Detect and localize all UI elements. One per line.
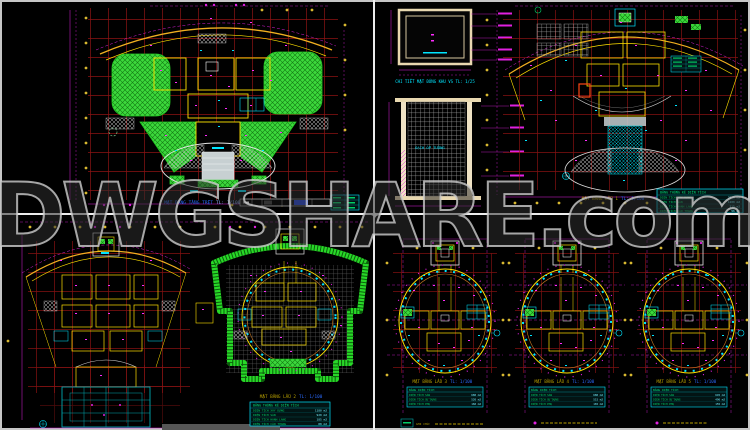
svg-text:BẢNG DIỆN TÍCH: BẢNG DIỆN TÍCH	[409, 387, 434, 392]
svg-text:TL: 1/100: TL: 1/100	[694, 379, 717, 384]
legend-table: BẢNG THỐNG KÊ DIỆN TÍCH DIỆN TÍCH XÂY DỰ…	[250, 402, 330, 426]
svg-text:GHI CHÚ:: GHI CHÚ:	[416, 421, 431, 426]
sheet-level1-plan: CHI TIẾT MẶT ĐỨNG KHU VS TL: 1/25 GẠCH Ố…	[375, 0, 750, 215]
svg-text:155 m2: 155 m2	[715, 402, 725, 406]
svg-text:DIỆN TÍCH XÂY DỰNG: DIỆN TÍCH XÂY DỰNG	[660, 195, 692, 200]
svg-text:MẶT BẰNG LẦU 3: MẶT BẰNG LẦU 3	[412, 379, 447, 384]
svg-text:490 m2: 490 m2	[715, 398, 725, 402]
svg-text:TL: 1/100: TL: 1/100	[450, 379, 473, 384]
cad-preview-image: MẶT BẰNG TẦNG TRỆT TL: 1/100	[0, 0, 750, 430]
svg-text:TL: 1/100: TL: 1/100	[299, 394, 323, 400]
sheet-ground-floor-plan: MẶT BẰNG TẦNG TRỆT TL: 1/100	[0, 0, 375, 215]
svg-text:DIỆN TÍCH SỬ DỤNG: DIỆN TÍCH SỬ DỤNG	[531, 397, 559, 402]
legend-table: BẢNG DIỆN TÍCH DIỆN TÍCH SÀN 645 m2 DIỆN…	[651, 387, 727, 407]
svg-text:DIỆN TÍCH SÀN: DIỆN TÍCH SÀN	[253, 412, 276, 417]
svg-text:BẢNG THỐNG KÊ DIỆN TÍCH: BẢNG THỐNG KÊ DIỆN TÍCH	[253, 403, 299, 408]
svg-text:2150 m2: 2150 m2	[728, 196, 740, 200]
svg-text:1180 m2: 1180 m2	[315, 409, 327, 413]
detail-top-title: CHI TIẾT MẶT ĐỨNG KHU VS TL: 1/25	[395, 79, 475, 84]
mini-table	[671, 56, 701, 72]
svg-text:DIỆN TÍCH SỬ DỤNG: DIỆN TÍCH SỬ DỤNG	[409, 397, 437, 402]
svg-text:TL: 1/100: TL: 1/100	[621, 196, 645, 202]
svg-text:DIỆN TÍCH SÀN: DIỆN TÍCH SÀN	[409, 392, 430, 397]
svg-text:TL: 1/100: TL: 1/100	[572, 379, 595, 384]
svg-text:DIỆN TÍCH CẦU THANG: DIỆN TÍCH CẦU THANG	[253, 421, 286, 426]
detail-bottom-label: GẠCH ỐP TƯỜNG	[415, 145, 445, 150]
tower-plan-level5: MẶT BẰNG LẦU 5 TL: 1/100 BẢNG DIỆN TÍCH …	[630, 239, 749, 425]
svg-text:DIỆN TÍCH PHỤ: DIỆN TÍCH PHỤ	[409, 401, 430, 406]
svg-text:DIỆN TÍCH SÀN: DIỆN TÍCH SÀN	[531, 392, 552, 397]
sheet-level2-plans: MẶT BẰNG LẦU 2 TL: 1/100 BẢNG THỐNG KÊ D…	[0, 215, 375, 430]
sheet-tower-plans: MẶT BẰNG LẦU 3 TL: 1/100 BẢNG DIỆN TÍCH …	[375, 215, 750, 430]
svg-text:520 m2: 520 m2	[471, 398, 481, 402]
svg-text:DIỆN TÍCH SỬ DỤNG: DIỆN TÍCH SỬ DỤNG	[653, 397, 681, 402]
svg-text:BẢNG THỐNG KÊ DIỆN TÍCH: BẢNG THỐNG KÊ DIỆN TÍCH	[660, 190, 706, 195]
svg-text:BẢNG DIỆN TÍCH: BẢNG DIỆN TÍCH	[531, 387, 556, 392]
svg-text:88 m2: 88 m2	[318, 422, 327, 426]
svg-text:680 m2: 680 m2	[593, 393, 603, 397]
sheet-title: MẶT BẰNG LẦU 1 TL: 1/100	[582, 194, 645, 202]
svg-text:920 m2: 920 m2	[317, 413, 328, 417]
svg-text:1280 m2: 1280 m2	[728, 200, 740, 204]
svg-text:MẶT BẰNG LẦU 2: MẶT BẰNG LẦU 2	[260, 392, 297, 400]
legend-table: BẢNG DIỆN TÍCH DIỆN TÍCH SÀN 680 m2 DIỆN…	[407, 387, 483, 407]
svg-text:645 m2: 645 m2	[715, 393, 725, 397]
svg-text:BẢNG DIỆN TÍCH: BẢNG DIỆN TÍCH	[653, 387, 678, 392]
note-strip: GHI CHÚ:	[401, 419, 483, 427]
sheet-title: MẶT BẰNG LẦU 2 TL: 1/100	[260, 392, 323, 400]
detail-elevation-top: CHI TIẾT MẶT ĐỨNG KHU VS TL: 1/25	[391, 10, 512, 84]
svg-text:DIỆN TÍCH XÂY DỰNG: DIỆN TÍCH XÂY DỰNG	[253, 408, 285, 413]
svg-text:DIỆN TÍCH SÀN: DIỆN TÍCH SÀN	[653, 392, 674, 397]
title-block-bar	[240, 199, 330, 206]
svg-text:DIỆN TÍCH HÀNH LANG: DIỆN TÍCH HÀNH LANG	[253, 417, 286, 422]
tower-plan-level4: MẶT BẰNG LẦU 4 TL: 1/100 BẢNG DIỆN TÍCH …	[508, 239, 627, 425]
svg-text:MẶT BẰNG LẦU 5: MẶT BẰNG LẦU 5	[656, 379, 691, 384]
svg-text:TL: 1/100: TL: 1/100	[216, 200, 241, 206]
tower-plan-level3: MẶT BẰNG LẦU 3 TL: 1/100 BẢNG DIỆN TÍCH …	[386, 239, 505, 427]
svg-text:680 m2: 680 m2	[471, 393, 481, 397]
divider-center-sparkle: ✦	[366, 206, 384, 224]
axis-markers	[94, 226, 256, 228]
svg-text:DIỆN TÍCH HÀNH LANG: DIỆN TÍCH HÀNH LANG	[660, 204, 693, 209]
svg-text:MẶT BẰNG LẦU 4: MẶT BẰNG LẦU 4	[534, 379, 569, 384]
svg-text:DIỆN TÍCH PHỤ: DIỆN TÍCH PHỤ	[531, 401, 552, 406]
note-strip	[534, 422, 598, 425]
legend-table: BẢNG THỐNG KÊ DIỆN TÍCH DIỆN TÍCH XÂY DỰ…	[657, 189, 743, 213]
svg-text:215 m2: 215 m2	[730, 205, 741, 209]
note-strip	[656, 422, 708, 425]
svg-text:DIỆN TÍCH PHỤ: DIỆN TÍCH PHỤ	[653, 401, 674, 406]
right-plan: MẶT BẰNG LẦU 2 TL: 1/100 BẢNG THỐNG KÊ D…	[196, 229, 366, 426]
svg-text:515 m2: 515 m2	[593, 398, 603, 402]
svg-text:MẶT BẰNG LẦU 1: MẶT BẰNG LẦU 1	[582, 194, 619, 202]
svg-text:160 m2: 160 m2	[471, 402, 481, 406]
svg-text:DIỆN TÍCH SÀN: DIỆN TÍCH SÀN	[660, 199, 683, 204]
svg-text:165 m2: 165 m2	[593, 402, 603, 406]
svg-text:185 m2: 185 m2	[317, 418, 328, 422]
mini-table	[331, 195, 359, 210]
legend-table: BẢNG DIỆN TÍCH DIỆN TÍCH SÀN 680 m2 DIỆN…	[529, 387, 605, 407]
